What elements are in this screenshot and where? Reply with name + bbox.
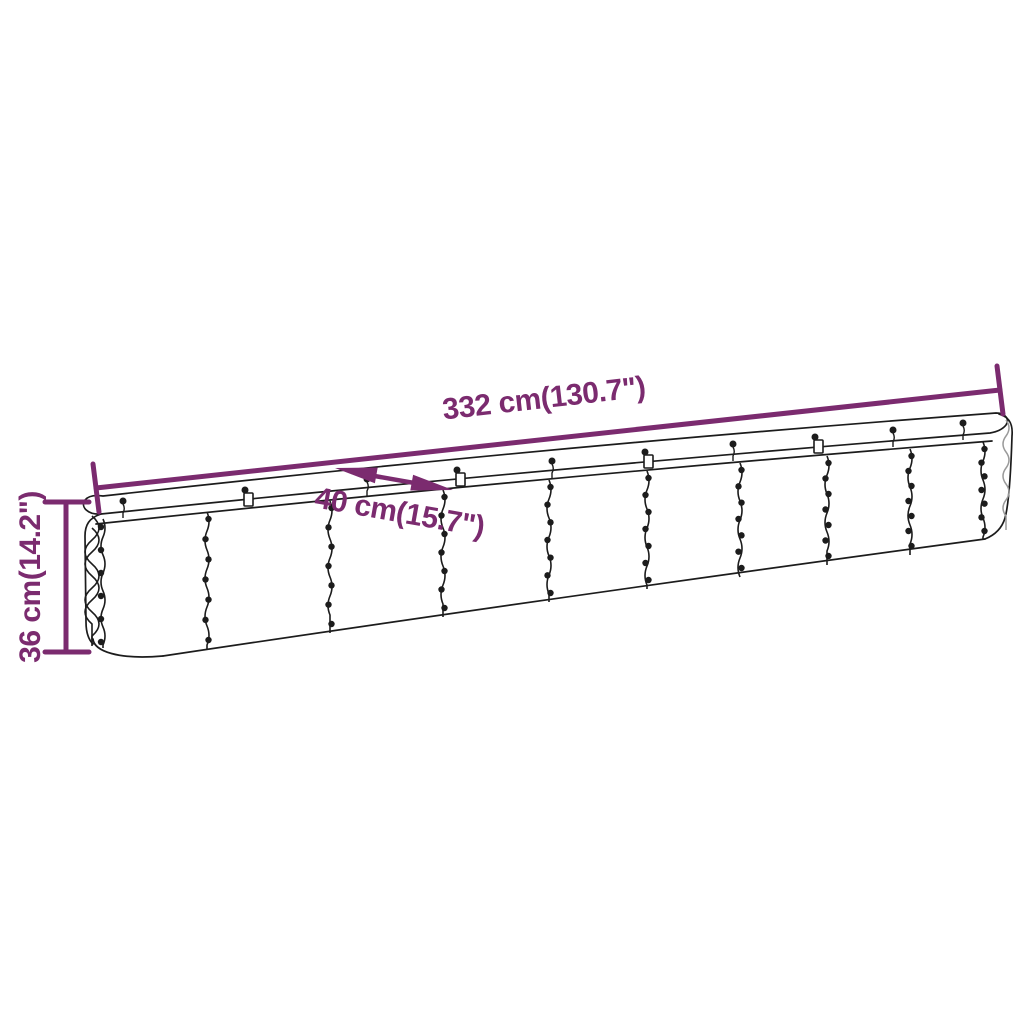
rivet-dot: [98, 547, 104, 553]
rivet-dot: [547, 590, 553, 596]
planter-opening-outline: [83, 413, 1007, 514]
rivet-dot: [738, 532, 744, 538]
rivet-dot: [905, 468, 911, 474]
length-dimension-cap-right: [997, 366, 1003, 414]
rivet-dot: [205, 637, 211, 643]
rivet-dot: [981, 473, 987, 479]
length-dimension-cap-left: [93, 464, 99, 512]
rivet-dot: [202, 576, 208, 582]
rivet-dot: [908, 483, 914, 489]
rim-rivets: [120, 420, 967, 519]
rivet-dot: [908, 453, 914, 459]
back-seam-tail: [552, 464, 553, 478]
rivet-dot: [645, 543, 651, 549]
rivet-dot: [205, 556, 211, 562]
rivet-dot: [905, 498, 911, 504]
back-seam-tail: [123, 504, 124, 518]
rivet-dot: [981, 528, 987, 534]
rivet-dot: [822, 537, 828, 543]
rivet-dot: [825, 491, 831, 497]
back-seam-tail: [893, 433, 894, 447]
rim-clip: [456, 473, 465, 486]
product-dimension-diagram: 332 cm(130.7") 40 cm(15.7") 36 cm(14.2"): [0, 0, 1024, 1024]
rivet-dot: [547, 519, 553, 525]
rivet-dot: [325, 524, 331, 530]
rivet-dot: [981, 446, 987, 452]
rim-rivet-dot: [120, 498, 127, 505]
rivet-dot: [205, 596, 211, 602]
rim-rivet-dot: [549, 458, 556, 465]
rivet-dot: [735, 483, 741, 489]
rivet-dot: [98, 593, 104, 599]
rim-rivet-dot: [890, 427, 897, 434]
rivet-dot: [544, 572, 550, 578]
rivet-dot: [642, 560, 648, 566]
rivet-dot: [544, 501, 550, 507]
rivet-dot: [328, 543, 334, 549]
rivet-dot: [547, 484, 553, 490]
rivet-dot: [738, 565, 744, 571]
rivet-dot: [328, 582, 334, 588]
rivet-dot: [645, 509, 651, 515]
rivet-dot: [735, 516, 741, 522]
rivet-dot: [205, 516, 211, 522]
planter-drawing: [83, 413, 1012, 657]
rim-clip: [244, 493, 253, 506]
rim-clip: [814, 440, 823, 453]
rivet-dot: [547, 554, 553, 560]
rivet-dot: [441, 494, 447, 500]
rivet-dot: [735, 548, 741, 554]
width-arrowhead-right: [410, 475, 453, 491]
width-arrowhead-left: [335, 468, 378, 484]
rivet-dot: [825, 553, 831, 559]
rivet-dot: [98, 570, 104, 576]
rivet-dot: [642, 492, 648, 498]
rivet-dot: [645, 475, 651, 481]
rivet-dot: [325, 601, 331, 607]
rivet-dot: [325, 563, 331, 569]
rivet-dot: [642, 526, 648, 532]
rivet-dot: [645, 577, 651, 583]
rivet-dot: [822, 506, 828, 512]
rivet-dot: [905, 528, 911, 534]
left-end-corrugation: [85, 516, 105, 648]
rivet-dot: [908, 543, 914, 549]
dimension-annotations: 332 cm(130.7") 40 cm(15.7") 36 cm(14.2"): [14, 366, 1003, 663]
rivet-dot: [98, 524, 104, 530]
rim-rivet-dot: [730, 441, 737, 448]
rivet-dot: [441, 605, 447, 611]
rivet-dot: [978, 487, 984, 493]
rivet-dot: [738, 499, 744, 505]
rivet-dot: [822, 475, 828, 481]
diagram-canvas: 332 cm(130.7") 40 cm(15.7") 36 cm(14.2"): [0, 0, 1024, 1024]
rivet-dot: [328, 621, 334, 627]
rivet-dot: [98, 616, 104, 622]
rivet-dot: [978, 514, 984, 520]
back-seam-tail: [963, 426, 964, 440]
length-dimension: 332 cm(130.7"): [93, 366, 1003, 512]
rivet-dot: [438, 549, 444, 555]
width-dimension-label: 40 cm(15.7"): [312, 481, 487, 543]
rivet-dot: [981, 500, 987, 506]
rivet-dot: [202, 617, 208, 623]
rivet-dot: [441, 568, 447, 574]
rivet-dot: [738, 467, 744, 473]
back-seam-tail: [733, 447, 734, 461]
rivet-dot: [978, 459, 984, 465]
rivet-dot: [908, 513, 914, 519]
rivet-dot: [544, 537, 550, 543]
rim-clip: [644, 455, 653, 468]
left-end-seam: [101, 519, 105, 648]
height-dimension-label: 36 cm(14.2"): [14, 491, 47, 663]
rivet-dot: [98, 639, 104, 645]
rim-rivet-dot: [960, 420, 967, 427]
rivet-dot: [825, 522, 831, 528]
length-dimension-label: 332 cm(130.7"): [441, 371, 647, 427]
rivet-dot: [438, 586, 444, 592]
rivet-dot: [202, 536, 208, 542]
planter-bottom-edge: [163, 539, 985, 656]
rivet-dot: [825, 460, 831, 466]
height-dimension: 36 cm(14.2"): [14, 491, 89, 663]
